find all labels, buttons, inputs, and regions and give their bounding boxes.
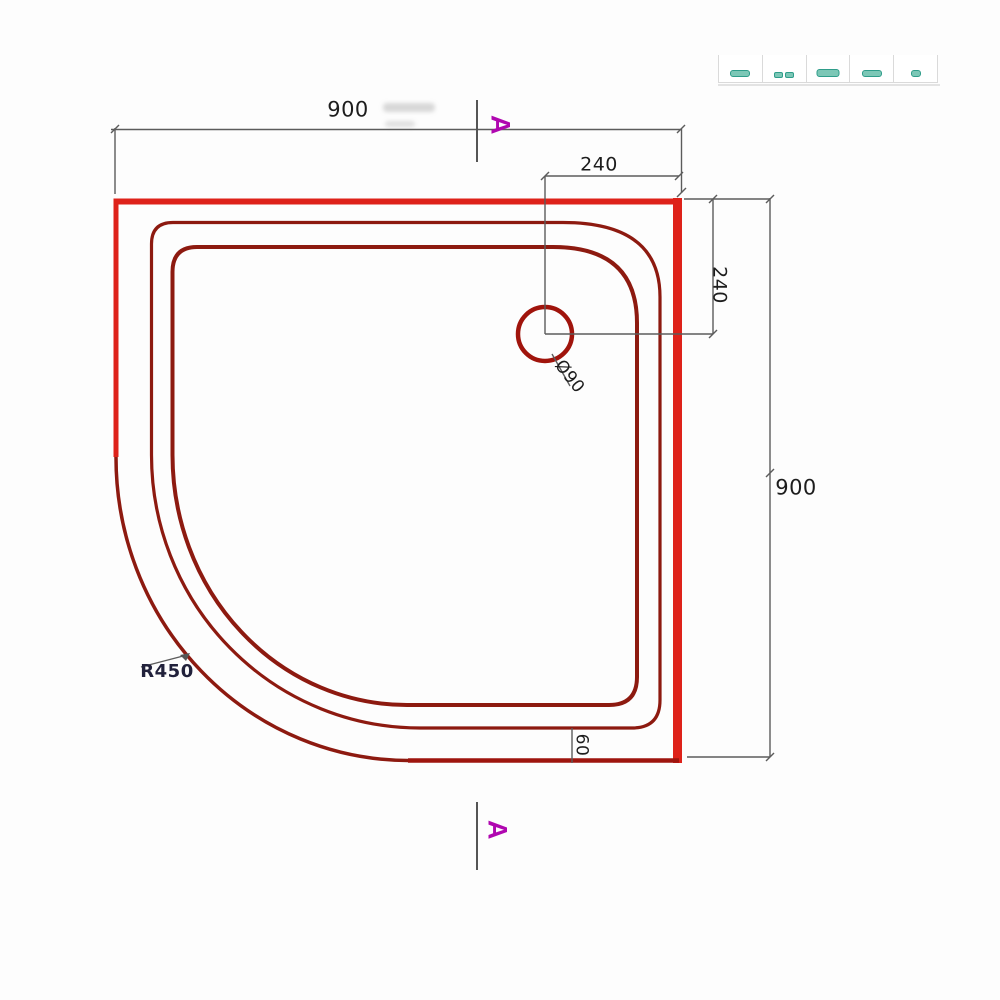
tray-drawing-canvas: [0, 0, 1000, 1000]
toolbar-icon-cell-4[interactable]: [849, 55, 894, 83]
cropped-teal-icon-2: [774, 71, 794, 77]
toolbar-icon-cell-3[interactable]: [806, 55, 851, 83]
outer-rim-quadrant-arc: [116, 457, 408, 761]
toolbar-icon-strip: [718, 55, 937, 83]
dim-label-top-width: 900: [327, 100, 369, 121]
cropped-teal-icon-5: [911, 70, 921, 77]
inner-profiles: [152, 223, 661, 729]
photo-artifact-smudge: [383, 103, 435, 112]
dim-label-ledge-width: 60: [573, 734, 590, 757]
cropped-teal-icon-3: [816, 69, 839, 77]
cropped-teal-icon-1: [730, 70, 750, 77]
toolbar-icon-cell-1[interactable]: [718, 55, 763, 83]
dim-label-drain-offset-right: 240: [710, 266, 729, 304]
dim-label-corner-radius: R450: [140, 663, 193, 681]
toolbar-icon-cell-5[interactable]: [893, 55, 938, 83]
toolbar-icon-cell-2[interactable]: [762, 55, 807, 83]
shower-tray-technical-drawing: 900 900 240 240 Ø90 R450 60 A A: [0, 0, 1000, 1000]
dim-label-drain-offset-top: 240: [580, 156, 618, 175]
dim-label-right-height: 900: [775, 478, 817, 499]
outer-rim: [114, 198, 682, 763]
inner-profile-outer-loop: [152, 223, 661, 729]
section-marker-bottom: A: [484, 820, 511, 840]
photo-artifact-smudge: [385, 121, 415, 127]
cropped-teal-icon-4: [862, 70, 882, 77]
toolbar-strip-shadow: [718, 84, 940, 86]
section-marker-top: A: [487, 115, 514, 135]
